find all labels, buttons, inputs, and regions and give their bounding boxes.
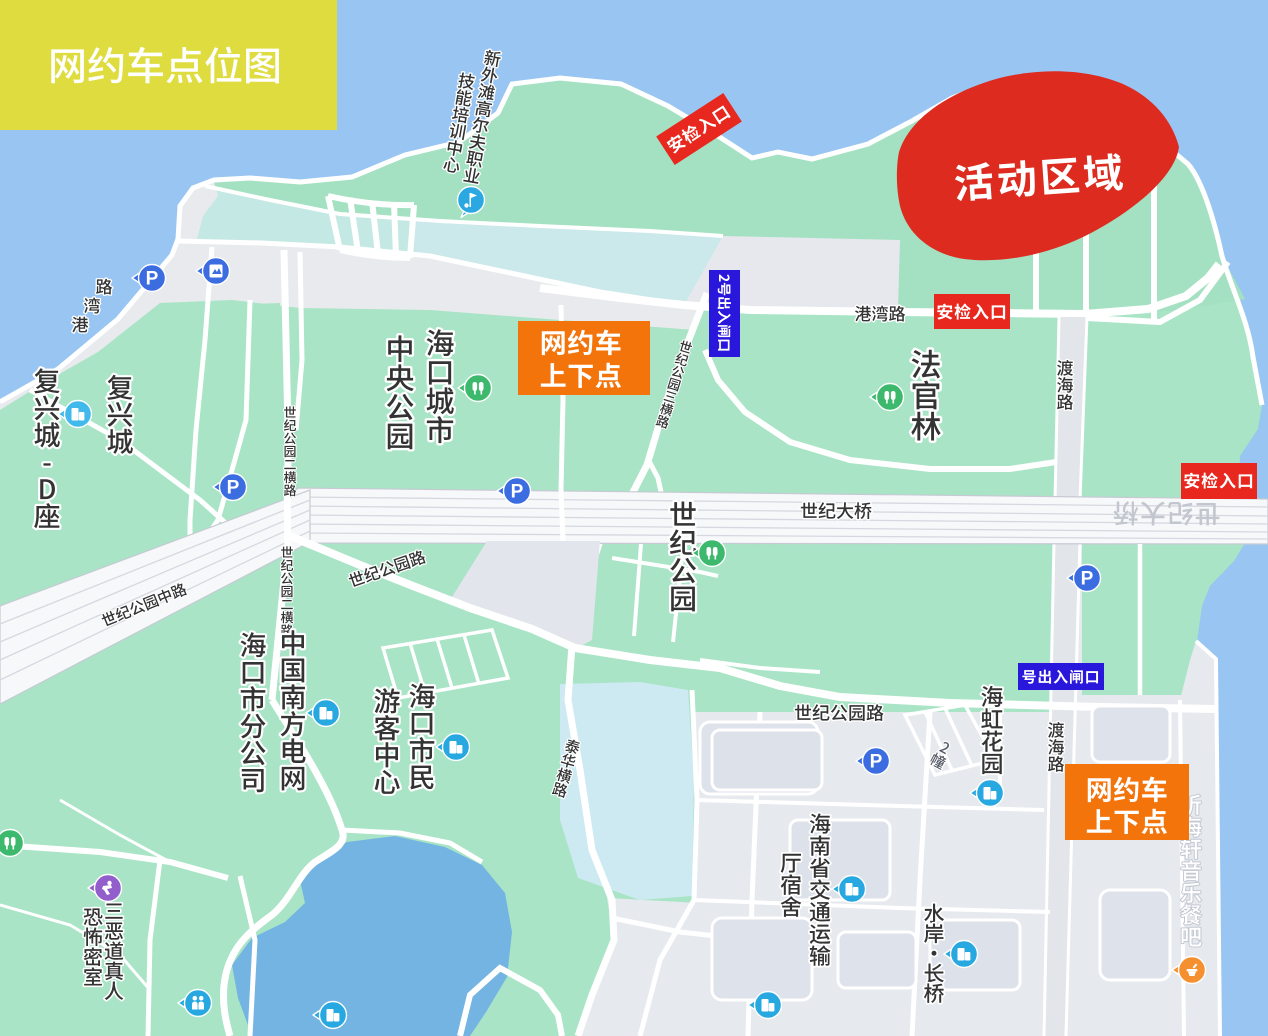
svg-text:P: P <box>870 752 883 773</box>
svg-text:P: P <box>511 482 524 503</box>
svg-text:P: P <box>146 269 159 290</box>
svg-text:P: P <box>227 478 240 499</box>
svg-text:P: P <box>1081 569 1094 590</box>
